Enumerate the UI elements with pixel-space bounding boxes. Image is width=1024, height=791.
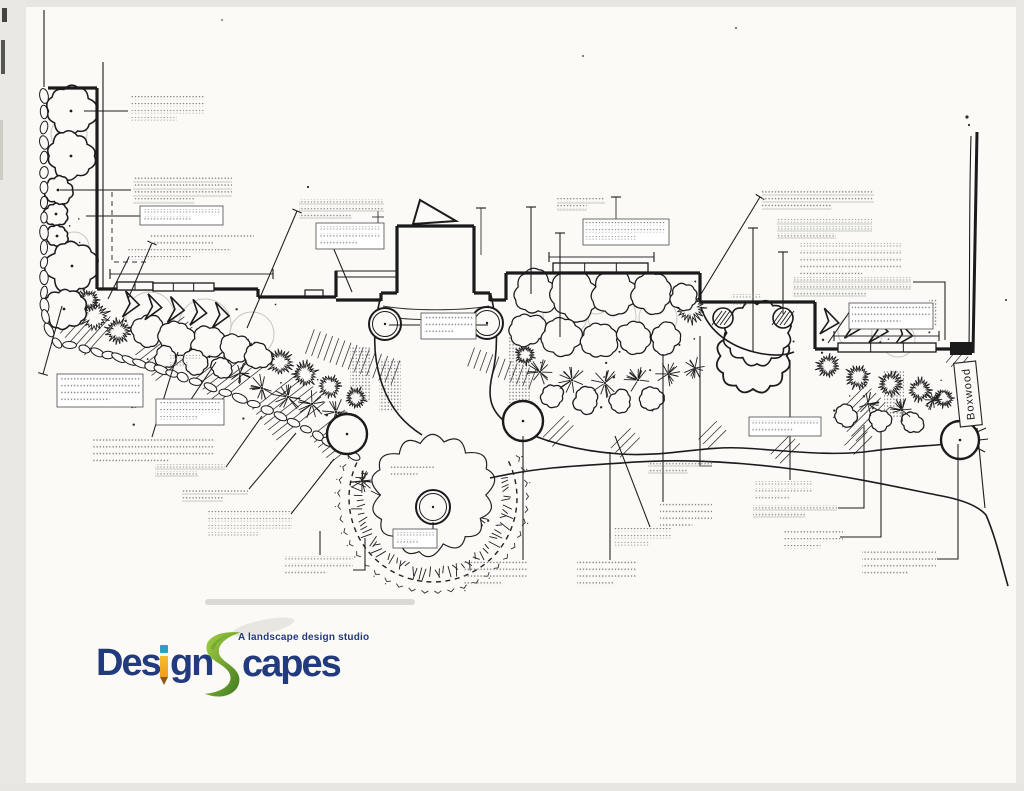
logo-word-design-left: Des — [96, 642, 160, 685]
pencil-eraser-dot — [160, 645, 168, 653]
logo-tagline: A landscape design studio — [238, 632, 369, 643]
scan-crease-artifact — [205, 599, 415, 605]
logo-word-capes: capes — [242, 643, 340, 686]
scanned-plan-page: Boxwood Des gn capes A landscape design … — [0, 0, 1024, 791]
pencil-tip — [160, 677, 168, 685]
designscapes-logo: Des gn capes A landscape design studio — [96, 630, 406, 714]
pencil-body — [160, 656, 168, 677]
pencil-i-icon — [160, 645, 169, 687]
